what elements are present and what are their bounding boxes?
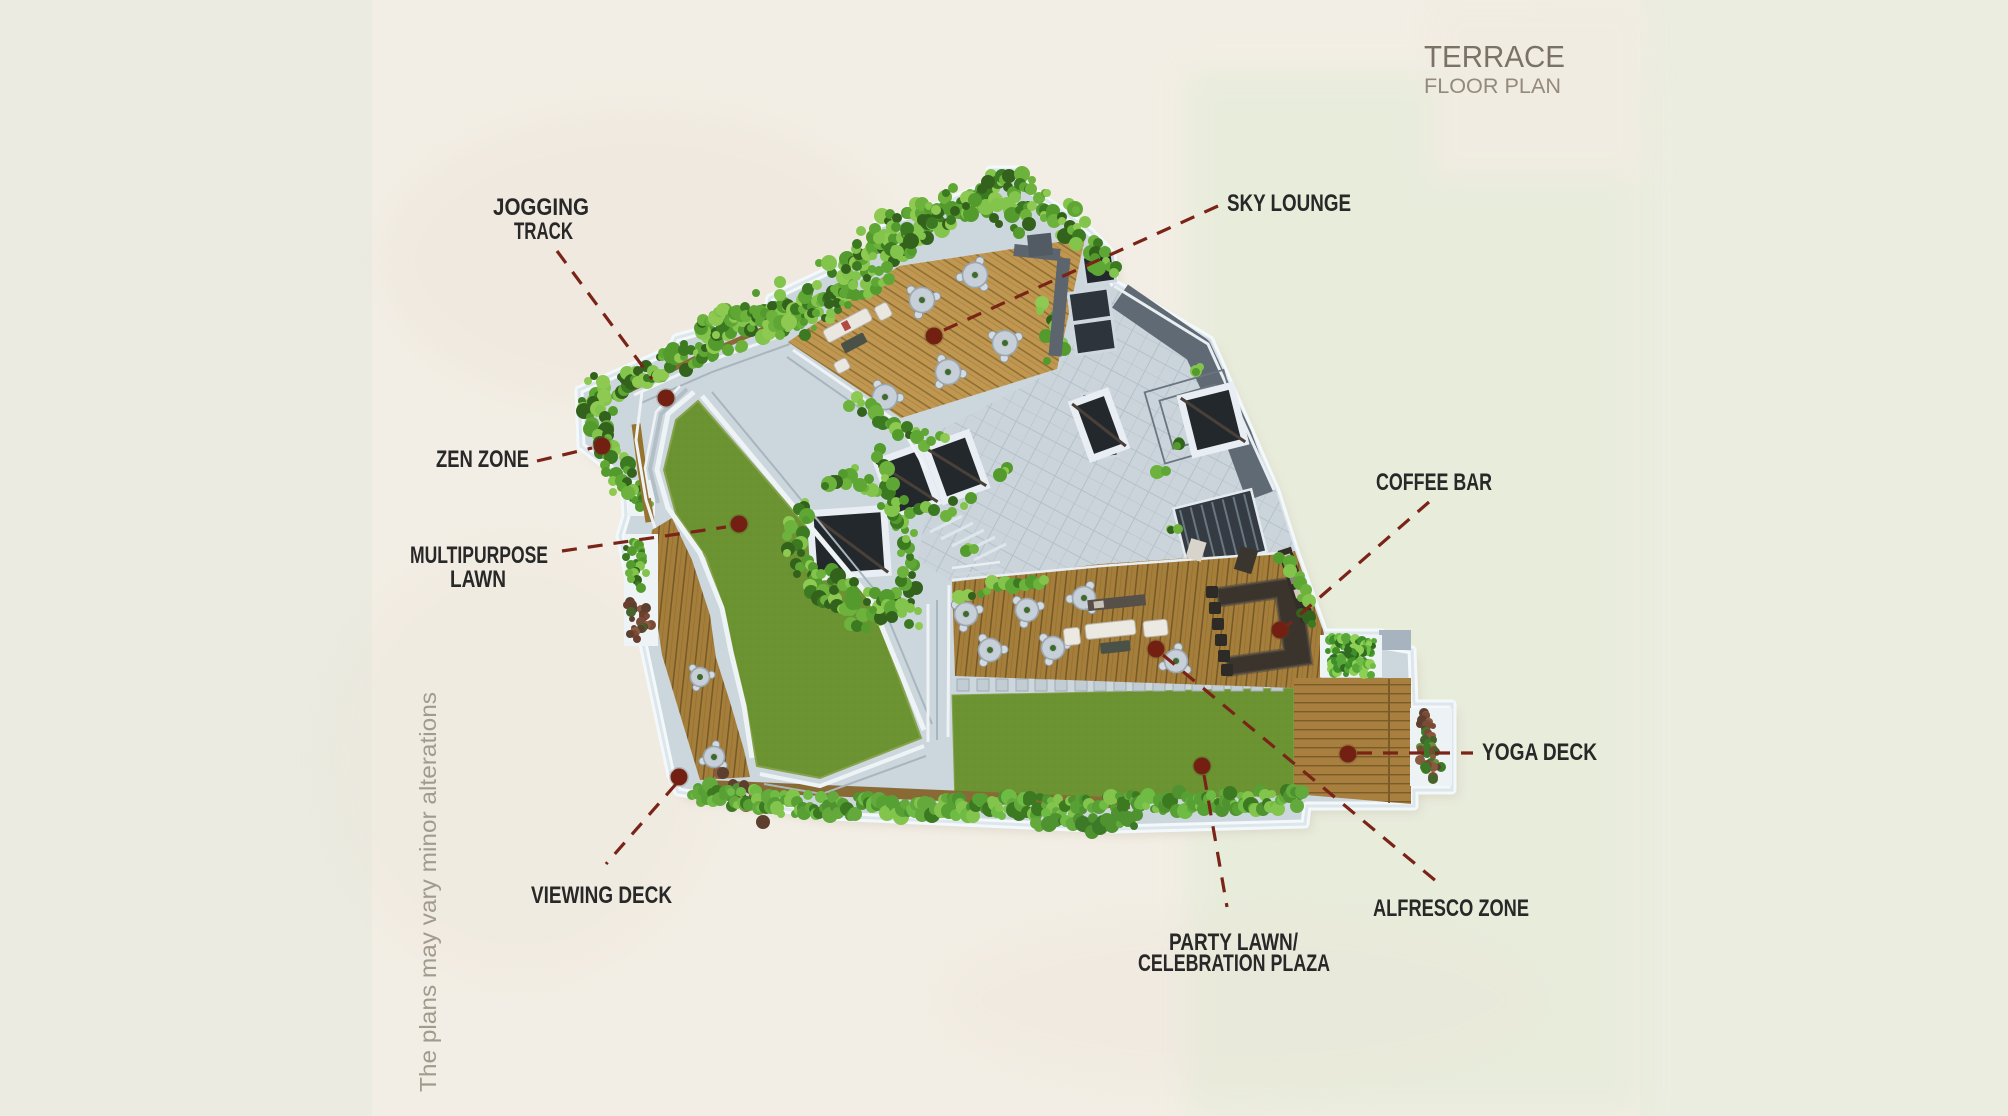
svg-text:TRACK: TRACK [514,218,573,245]
svg-text:MULTIPURPOSE: MULTIPURPOSE [410,542,548,569]
svg-text:CELEBRATION PLAZA: CELEBRATION PLAZA [1138,950,1330,977]
svg-text:LAWN: LAWN [450,566,506,593]
svg-text:FLOOR PLAN: FLOOR PLAN [1424,75,1561,98]
svg-text:The plans may vary minor alter: The plans may vary minor alterations [415,692,441,1092]
svg-text:VIEWING DECK: VIEWING DECK [531,882,673,909]
svg-text:COFFEE BAR: COFFEE BAR [1376,469,1492,496]
svg-text:ALFRESCO ZONE: ALFRESCO ZONE [1373,895,1529,922]
svg-text:SKY LOUNGE: SKY LOUNGE [1227,190,1351,217]
svg-text:JOGGING: JOGGING [493,194,589,221]
svg-text:TERRACE: TERRACE [1424,39,1565,74]
svg-text:YOGA DECK: YOGA DECK [1482,739,1598,766]
svg-text:ZEN ZONE: ZEN ZONE [436,446,529,473]
